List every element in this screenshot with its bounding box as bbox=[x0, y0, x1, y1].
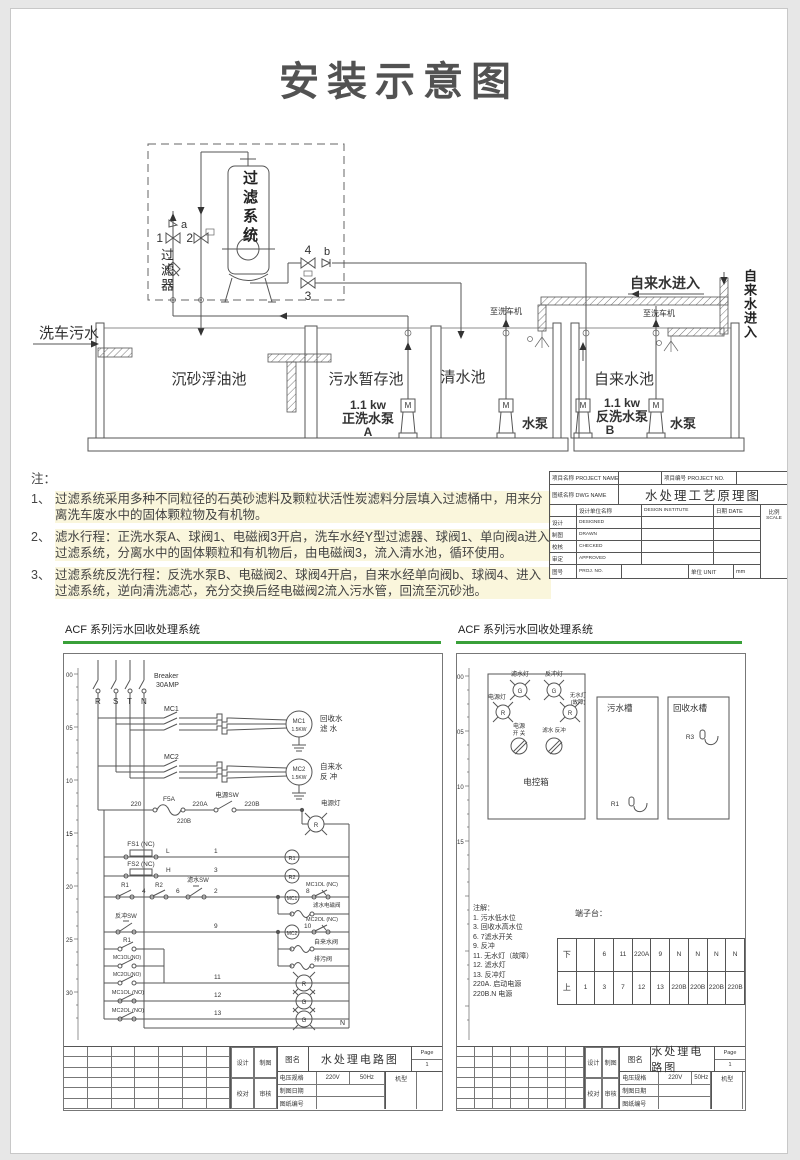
pump-clean-label: 水泵 bbox=[522, 416, 548, 431]
terminal-cell: N bbox=[726, 939, 745, 972]
note-number: 2、 bbox=[31, 529, 55, 561]
annotation-item: 220A. 启动电源 bbox=[473, 980, 533, 990]
sign-row-en: APPROVED bbox=[577, 553, 642, 564]
note-item: 2、 滤水行程：正洗水泵A、球阀1、电磁阀3开启，洗车水经Y型过滤器、球阀1、单… bbox=[31, 529, 551, 561]
wire-L: L bbox=[166, 848, 170, 855]
lamp-nowater-label-1: 无水灯 bbox=[570, 691, 587, 699]
wire-220a: 220A bbox=[192, 801, 208, 808]
sign-row-cn: 校核 bbox=[550, 541, 577, 552]
org-en: DESIGN INSTITUTE bbox=[642, 505, 714, 516]
terminal-cell bbox=[576, 939, 595, 972]
pump-tap-motor-label: M bbox=[653, 401, 660, 410]
dwg-title: 水处理电路图 bbox=[309, 1047, 411, 1071]
terminal-cell: 220B bbox=[707, 972, 726, 1005]
mc1-label: MC1 bbox=[164, 706, 179, 713]
ruler-left bbox=[74, 668, 78, 1040]
note-text: 滤水行程：正洗水泵A、球阀1、电磁阀3开启，洗车水经Y型过滤器、球阀1、单向阀a… bbox=[55, 529, 551, 561]
date-label: 制图日期 bbox=[620, 1085, 659, 1097]
terminal-cell: 220B bbox=[688, 972, 707, 1005]
note-number: 1、 bbox=[31, 491, 55, 523]
wire-1: 1 bbox=[214, 848, 218, 855]
valve-4-label: 4 bbox=[305, 243, 312, 257]
tank-sand-label: 沉砂浮油池 bbox=[171, 371, 246, 388]
lamp-g1-letter: G bbox=[302, 1000, 307, 1006]
piping-diagram: M M M M 1 2 a 4 b 3 洗车污水 沉砂浮油池 污水暂存池 清水池… bbox=[26, 126, 788, 466]
circuit-diagram-box: 00 05 10 15 20 25 30 Breaker 30AMP bbox=[63, 653, 443, 1111]
pump-a-name: 正洗水泵 bbox=[342, 411, 394, 426]
design-label: 设计 bbox=[585, 1047, 602, 1078]
mc2ol-nc-label: MC2OL (NC) bbox=[306, 917, 338, 923]
annotation-item: 1. 污水低水位 bbox=[473, 914, 533, 924]
mc1ol-nc-label: MC1OL (NC) bbox=[306, 882, 338, 888]
wire-4: 4 bbox=[142, 888, 146, 895]
circuit-svg: 00 05 10 15 20 25 30 Breaker 30AMP bbox=[64, 654, 442, 1046]
terminal-row-label: 上 bbox=[558, 972, 577, 1005]
sprinkler-icon bbox=[528, 331, 550, 348]
terminal-title: 端子台： bbox=[575, 908, 607, 919]
mode-switch-label: 滤水 反冲 bbox=[542, 726, 566, 734]
main-title-block: 项目名称 PROJECT NAME 项目编号 PROJECT NO. 图纸名称 … bbox=[549, 471, 788, 579]
terminal-cell: 6 bbox=[595, 939, 614, 972]
terminal-table: 下 6 11 220A 9 N N N N 上 1 3 7 12 13 220B… bbox=[557, 938, 745, 1005]
pump-b-kw: 1.1 kw bbox=[604, 396, 641, 410]
green-divider-left bbox=[63, 641, 441, 644]
filter-solenoid-label: 滤水电磁阀 bbox=[313, 901, 341, 909]
tank-clean-label: 清水池 bbox=[440, 369, 485, 386]
sign-row-en: DRAWN bbox=[577, 529, 642, 540]
terminal-cell: 12 bbox=[632, 972, 651, 1005]
wire-220b: 220B bbox=[244, 801, 259, 808]
audit-label: 审核 bbox=[254, 1078, 277, 1109]
notes-heading: 注： bbox=[31, 471, 551, 487]
mc2ol-no2-label: MC2OL (NO) bbox=[112, 1008, 144, 1014]
check-b-label: b bbox=[324, 246, 330, 258]
neutral-label: N bbox=[340, 1020, 345, 1027]
sign-grid: 设计 制图 校对 审核 bbox=[231, 1047, 277, 1109]
dwg-title-block-right: 设计 制图 校对 审核 图名 水处理电路图 Page 1 电压 bbox=[457, 1046, 745, 1109]
audit-label: 审核 bbox=[602, 1078, 619, 1109]
wire-9: 9 bbox=[214, 923, 218, 930]
sign-row-cn: 审定 bbox=[550, 553, 577, 564]
ruler-label: 05 bbox=[457, 730, 464, 736]
wire-2: 2 bbox=[214, 888, 218, 895]
pump-a-motor-label: M bbox=[405, 401, 412, 410]
dwg-name-label: 图名 bbox=[278, 1047, 309, 1071]
terminal-cell: 13 bbox=[651, 972, 670, 1005]
page-number: 1 bbox=[412, 1060, 442, 1072]
pump-clean-motor-label: M bbox=[503, 401, 510, 410]
terminal-cell: N bbox=[688, 939, 707, 972]
carwash-sewage-label: 洗车污水 bbox=[39, 325, 99, 342]
fs2-rung bbox=[104, 869, 349, 883]
sign-row-en: DESIGNED bbox=[577, 517, 642, 528]
contact-r2-label: R2 bbox=[155, 883, 163, 889]
annotation-list: 注解： 1. 污水低水位 3. 回收水高水位 6. 7滤水开关 9. 反冲 11… bbox=[473, 904, 533, 999]
page-title: 安装示意图 bbox=[11, 49, 787, 107]
wire-3: 3 bbox=[214, 867, 218, 874]
fuse-label: F5A bbox=[163, 796, 176, 803]
drain-valve-label: 排污阀 bbox=[314, 955, 332, 963]
terminal-cell: 11 bbox=[614, 939, 633, 972]
lamp-nowater-label-2: (故障) bbox=[571, 698, 586, 706]
project-name-label: 项目名称 PROJECT NAME bbox=[550, 472, 619, 484]
design-label: 设计 bbox=[231, 1047, 254, 1078]
annotation-item: 9. 反冲 bbox=[473, 942, 533, 952]
tap-in-label: 自来水进入 bbox=[630, 275, 700, 291]
sewage-tank-label: 污水槽 bbox=[607, 703, 633, 713]
volt-value: 220V bbox=[659, 1072, 692, 1084]
hz-value: 50Hz bbox=[692, 1072, 711, 1084]
note-text: 过滤系统采用多种不同粒径的石英砂滤料及颗粒状活性炭滤料分层填入过滤桶中，用来分离… bbox=[55, 491, 551, 523]
acf-header-right: ACF 系列污水回收处理系统 bbox=[458, 621, 593, 637]
motor1-kw: 1.5KW bbox=[291, 727, 306, 733]
revision-grid bbox=[64, 1047, 231, 1109]
wire-8: 8 bbox=[306, 888, 310, 895]
ruler-right bbox=[465, 668, 469, 1040]
pump-a-kw: 1.1 kw bbox=[350, 398, 387, 412]
unit-label: 单位 UNIT bbox=[689, 565, 734, 578]
page-cell: Page 1 bbox=[411, 1047, 442, 1071]
filter-vertical-label: 过滤器 bbox=[157, 248, 176, 293]
motor2-kw: 1.5KW bbox=[291, 775, 306, 781]
terminal-cell: N bbox=[670, 939, 689, 972]
sign-row-cn: 制图 bbox=[550, 529, 577, 540]
terminal-cell: 7 bbox=[614, 972, 633, 1005]
terminal-cell: 220B bbox=[670, 972, 689, 1005]
volt-label: 电压规格 bbox=[620, 1072, 659, 1084]
panel-diagram-box: 00 05 10 15 bbox=[456, 653, 746, 1111]
ruler-label: 30 bbox=[66, 991, 73, 997]
annotation-item: 6. 7滤水开关 bbox=[473, 933, 533, 943]
motor2-name: MC2 bbox=[293, 767, 306, 773]
lamp-g-letter: G bbox=[552, 689, 557, 695]
wire-13: 13 bbox=[214, 1010, 222, 1017]
project-no-label: 项目编号 PROJECT NO. bbox=[662, 472, 737, 484]
scale-en: SCALE bbox=[766, 516, 782, 521]
relay-r2: R2 bbox=[288, 875, 295, 881]
lamp-g2-letter: G bbox=[302, 1018, 307, 1024]
note-text: 过滤系统反洗行程：反洗水泵B、电磁阀2、球阀4开启，自来水经单向阀b、球阀4、进… bbox=[55, 567, 551, 599]
sign-grid: 设计 制图 校对 审核 bbox=[585, 1047, 621, 1109]
lamp-r-letter: R bbox=[501, 711, 506, 717]
ruler-label: 10 bbox=[457, 785, 464, 791]
dwg-name-label: 图纸名称 DWG NAME bbox=[550, 485, 619, 504]
lamp-r-letter: R bbox=[568, 711, 573, 717]
name-area: 图名 水处理电路图 Page 1 电压规格 220V 50Hz bbox=[278, 1047, 442, 1109]
piping-svg: M M M M 1 2 a 4 b 3 洗车污水 沉砂浮油池 污水暂存池 清水池… bbox=[26, 126, 788, 466]
breaker-label-1: Breaker bbox=[154, 673, 179, 680]
page-cell: Page 1 bbox=[714, 1047, 745, 1071]
terminal-cell: 9 bbox=[651, 939, 670, 972]
terminal-cell: 3 bbox=[595, 972, 614, 1005]
power-switch-label-2: 开 关 bbox=[513, 729, 526, 737]
sign-row-en: CHECKED bbox=[577, 541, 642, 552]
annotation-item: 11. 无水灯（故障） bbox=[473, 952, 533, 962]
terminal-cell: 1 bbox=[576, 972, 595, 1005]
scale-cell: 比例 SCALE bbox=[760, 505, 787, 578]
to-carwash-label-1: 至洗车机 bbox=[490, 306, 522, 316]
ruler-label: 05 bbox=[66, 726, 73, 732]
no-label: 图纸编号 bbox=[620, 1097, 659, 1109]
float-r1-icon bbox=[629, 797, 647, 812]
tank-sewage-label: 污水暂存池 bbox=[328, 371, 403, 388]
valve-1-label: 1 bbox=[156, 231, 163, 245]
float-r3-label: R3 bbox=[686, 734, 695, 741]
page-label: Page bbox=[715, 1047, 745, 1060]
note-item: 1、 过滤系统采用多种不同粒径的石英砂滤料及颗粒状活性炭滤料分层填入过滤桶中，用… bbox=[31, 491, 551, 523]
power-lamp-label: 电源灯 bbox=[321, 798, 341, 807]
mc1ol-no-label: MC1OL(NO) bbox=[113, 955, 141, 961]
name-area: 图名 水处理电路图 Page 1 电压规格 220V 50Hz bbox=[620, 1047, 745, 1109]
project-name-value bbox=[619, 472, 662, 484]
annotation-item: 12. 滤水灯 bbox=[473, 961, 533, 971]
power-rotary-switch bbox=[511, 738, 527, 754]
green-divider-right bbox=[456, 641, 742, 644]
mc2ol-no-label: MC2OL(NO) bbox=[113, 972, 141, 978]
lamp-power-label: 电源灯 bbox=[488, 693, 506, 701]
unit-value: mm bbox=[734, 565, 760, 578]
scale-cn: 比例 bbox=[768, 508, 779, 516]
mc2-label: MC2 bbox=[164, 754, 179, 761]
valve-3-icon bbox=[301, 278, 315, 288]
terminal-cell: 220B bbox=[726, 972, 745, 1005]
annotation-item: 13. 反冲灯 bbox=[473, 971, 533, 981]
notes-section: 注： 1、 过滤系统采用多种不同粒径的石英砂滤料及颗粒状活性炭滤料分层填入过滤桶… bbox=[31, 471, 551, 605]
ruler-label: 15 bbox=[66, 832, 73, 838]
date-label: 制图日期 bbox=[278, 1085, 317, 1097]
terminal-row-label: 下 bbox=[558, 939, 577, 972]
project-no-value bbox=[737, 472, 787, 484]
date-header: 日期 DATE bbox=[714, 505, 760, 516]
note-number: 3、 bbox=[31, 567, 55, 599]
mc1ol-no2-label: MC1OL (NO) bbox=[112, 990, 144, 996]
pump-b-id: B bbox=[606, 423, 615, 437]
motor1-use-2: 滤 水 bbox=[320, 723, 338, 733]
lamp-filter-label: 滤水灯 bbox=[511, 670, 529, 678]
backwash-rung bbox=[104, 921, 349, 939]
volt-label: 电压规格 bbox=[278, 1072, 317, 1084]
tank-tap-label: 自来水池 bbox=[594, 371, 654, 388]
phase-r: R bbox=[95, 697, 101, 706]
fs1-label: FS1 (NC) bbox=[127, 841, 154, 848]
revision-grid bbox=[457, 1047, 585, 1109]
pump-b-motor-label: M bbox=[580, 401, 587, 410]
tap-in-vertical-label: 自来水进入 bbox=[740, 269, 759, 339]
org-label: 设计单位名称 bbox=[577, 505, 642, 516]
motor2-use-1: 自来水 bbox=[320, 761, 343, 771]
proof-label: 校对 bbox=[585, 1078, 602, 1109]
ruler-label: 00 bbox=[457, 675, 464, 681]
wire-220: 220 bbox=[131, 801, 142, 808]
phase-s: S bbox=[113, 697, 118, 706]
sign-row-cn: 设计 bbox=[550, 517, 577, 528]
recycle-tank-label: 回收水槽 bbox=[673, 703, 708, 713]
phase-t: T bbox=[127, 697, 132, 706]
acf-header-left: ACF 系列污水回收处理系统 bbox=[65, 621, 200, 637]
filter-branch bbox=[166, 152, 248, 303]
float-r1-label: R1 bbox=[611, 801, 620, 808]
annotation-title: 注解： bbox=[473, 904, 533, 914]
valve-4-icon bbox=[301, 258, 315, 268]
document-page: 安装示意图 bbox=[10, 8, 788, 1154]
tap-valve-label: 自来水阀 bbox=[314, 938, 338, 946]
valve-3-label: 3 bbox=[305, 289, 312, 303]
to-carwash-label-2: 至洗车机 bbox=[643, 308, 675, 318]
lamp-backwash-label: 反冲灯 bbox=[545, 670, 563, 678]
recycle-tank bbox=[668, 697, 729, 819]
wire-H: H bbox=[166, 867, 171, 874]
wire-220b-2: 220B bbox=[177, 819, 191, 825]
dwg-title: 水处理电路图 bbox=[651, 1047, 714, 1071]
dwg-title: 水处理工艺原理图 bbox=[619, 485, 787, 504]
mode-rotary-switch bbox=[546, 738, 562, 754]
branch-r1-label: R1 bbox=[123, 938, 131, 944]
motor1-use-1: 回收水 bbox=[320, 713, 343, 723]
terminal-cell: 220A bbox=[632, 939, 651, 972]
lamp-r-letter: R bbox=[302, 982, 307, 988]
terminal-cell: N bbox=[707, 939, 726, 972]
ruler-label: 10 bbox=[66, 779, 73, 785]
annotation-item: 3. 回收水高水位 bbox=[473, 923, 533, 933]
no-label: 图纸编号 bbox=[278, 1097, 317, 1109]
ruler-label: 15 bbox=[457, 840, 464, 846]
weir-pipe bbox=[268, 354, 331, 362]
check-a-label: a bbox=[181, 219, 188, 231]
draft-label: 制图 bbox=[602, 1047, 619, 1078]
draft-label: 制图 bbox=[254, 1047, 277, 1078]
dwg-title-block-left: 设计 制图 校对 审核 图名 水处理电路图 Page 1 电压 bbox=[64, 1046, 442, 1109]
page-label: Page bbox=[412, 1047, 442, 1060]
pump-tap-label: 水泵 bbox=[670, 416, 696, 431]
float-r3-icon bbox=[700, 730, 718, 745]
ruler-label: 20 bbox=[66, 885, 73, 891]
ruler-label: 25 bbox=[66, 938, 73, 944]
dwg-name-label: 图名 bbox=[620, 1047, 651, 1071]
filter-switch-label: 滤水SW bbox=[187, 876, 209, 884]
control-box-label: 电控箱 bbox=[523, 777, 549, 787]
blank-cell bbox=[550, 505, 577, 516]
breaker-label-2: 30AMP bbox=[156, 682, 179, 689]
sewage-tank bbox=[597, 697, 658, 819]
wire-12: 12 bbox=[214, 992, 222, 999]
power-switch-label-1: 电源 bbox=[513, 722, 525, 730]
lamp-g-letter: G bbox=[518, 689, 523, 695]
valve-2-label: 2 bbox=[186, 231, 193, 245]
model-label: 机型 bbox=[386, 1072, 417, 1109]
model-label: 机型 bbox=[712, 1072, 743, 1109]
pump-a-id: A bbox=[364, 425, 373, 439]
filter-system-vertical-label: 过滤系统 bbox=[239, 170, 260, 246]
note-item: 3、 过滤系统反洗行程：反洗水泵B、电磁阀2、球阀4开启，自来水经单向阀b、球阀… bbox=[31, 567, 551, 599]
filter-rung bbox=[104, 886, 349, 904]
dwgno-cn: 图号 bbox=[550, 565, 577, 578]
terminal-row-down: 下 6 11 220A 9 N N N N bbox=[558, 939, 745, 972]
annotation-item: 220B.N 电源 bbox=[473, 990, 533, 1000]
motor1-name: MC1 bbox=[293, 719, 306, 725]
coil-mc2: MC2 bbox=[287, 931, 298, 937]
valve-3-solenoid-icon bbox=[304, 271, 312, 276]
terminal-row-up: 上 1 3 7 12 13 220B 220B 220B 220B bbox=[558, 972, 745, 1005]
relay-r1: R1 bbox=[288, 856, 295, 862]
page-number: 1 bbox=[715, 1060, 745, 1072]
inlet-pipe bbox=[98, 348, 132, 357]
dwgno-en: PROJ. NO. bbox=[577, 565, 622, 578]
wire-10: 10 bbox=[304, 923, 312, 930]
coil-mc1: MC1 bbox=[287, 896, 298, 902]
wire-11: 11 bbox=[214, 974, 221, 981]
backwash-switch-label: 反冲SW bbox=[115, 912, 137, 920]
volt-value: 220V bbox=[317, 1072, 350, 1084]
fs2-label: FS2 (NC) bbox=[127, 861, 154, 868]
wire-6: 6 bbox=[176, 888, 180, 895]
power-switch-label: 电源SW bbox=[215, 790, 239, 799]
check-valve-b-icon bbox=[322, 259, 330, 267]
hz-value: 50Hz bbox=[350, 1072, 385, 1084]
ruler-label: 00 bbox=[66, 673, 73, 679]
motor2-use-2: 反 冲 bbox=[320, 771, 337, 781]
contact-r1-label: R1 bbox=[121, 883, 129, 889]
power-lamp-letter: R bbox=[314, 823, 319, 829]
pump-b-name: 反洗水泵 bbox=[596, 409, 648, 424]
phase-n: N bbox=[141, 697, 147, 706]
proof-label: 校对 bbox=[231, 1078, 254, 1109]
sprinkler-icon bbox=[657, 336, 679, 352]
